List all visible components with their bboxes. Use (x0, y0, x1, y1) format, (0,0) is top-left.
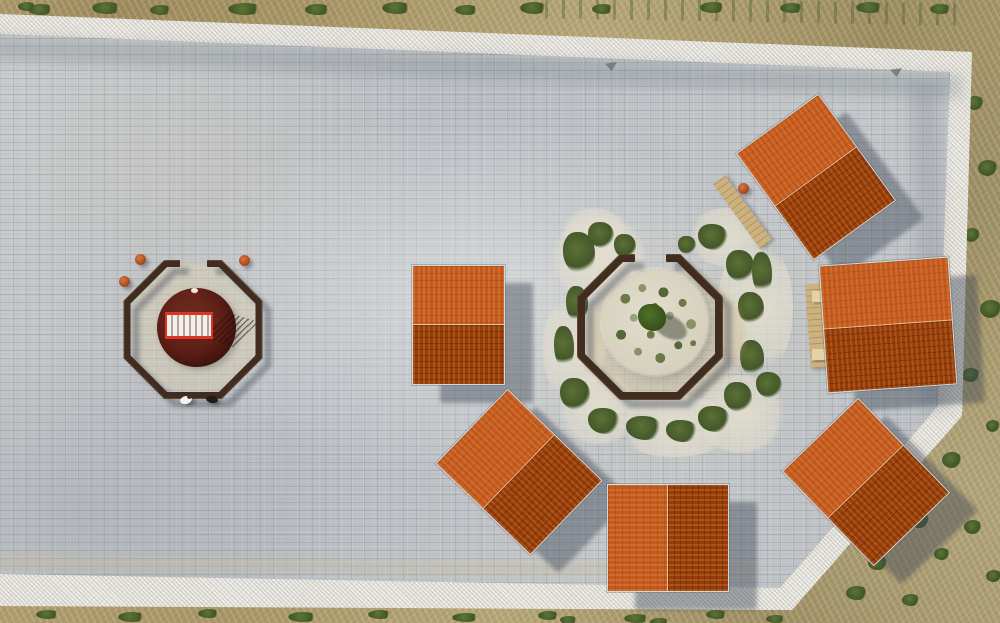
pavilion-south (607, 484, 729, 592)
roof-plane-sunlit (820, 258, 952, 330)
pavilion-west (412, 265, 505, 385)
pavilion-north (736, 94, 896, 261)
roof-plane-sunlit (608, 485, 668, 591)
pavilion-southeast (782, 398, 950, 567)
person-head (187, 394, 192, 399)
roof-plane-sunlit (413, 266, 504, 325)
roof-plane-shaded (824, 321, 956, 393)
roof-plane-shaded (413, 325, 504, 384)
pavilions-layer (0, 0, 1000, 623)
pavilion-southwest (435, 389, 602, 556)
roof-plane-shaded (668, 485, 728, 591)
aerial-photo-canvas (0, 0, 1000, 623)
pavilion-east (819, 257, 958, 394)
